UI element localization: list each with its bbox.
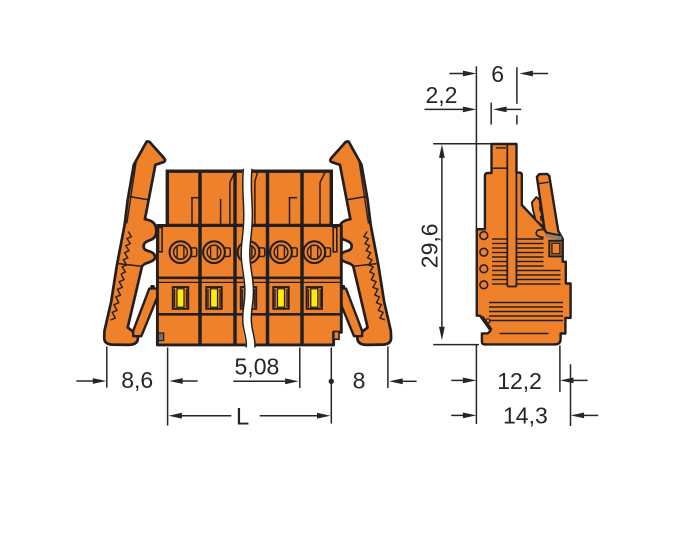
svg-text:2,2: 2,2 <box>426 82 458 108</box>
svg-text:6: 6 <box>491 61 504 87</box>
svg-text:14,3: 14,3 <box>503 403 548 429</box>
svg-text:29,6: 29,6 <box>416 223 442 268</box>
svg-text:8,6: 8,6 <box>121 367 153 393</box>
svg-text:5,08: 5,08 <box>235 354 280 380</box>
svg-text:L: L <box>236 404 249 431</box>
svg-text:8: 8 <box>353 368 366 394</box>
svg-text:12,2: 12,2 <box>497 368 542 394</box>
